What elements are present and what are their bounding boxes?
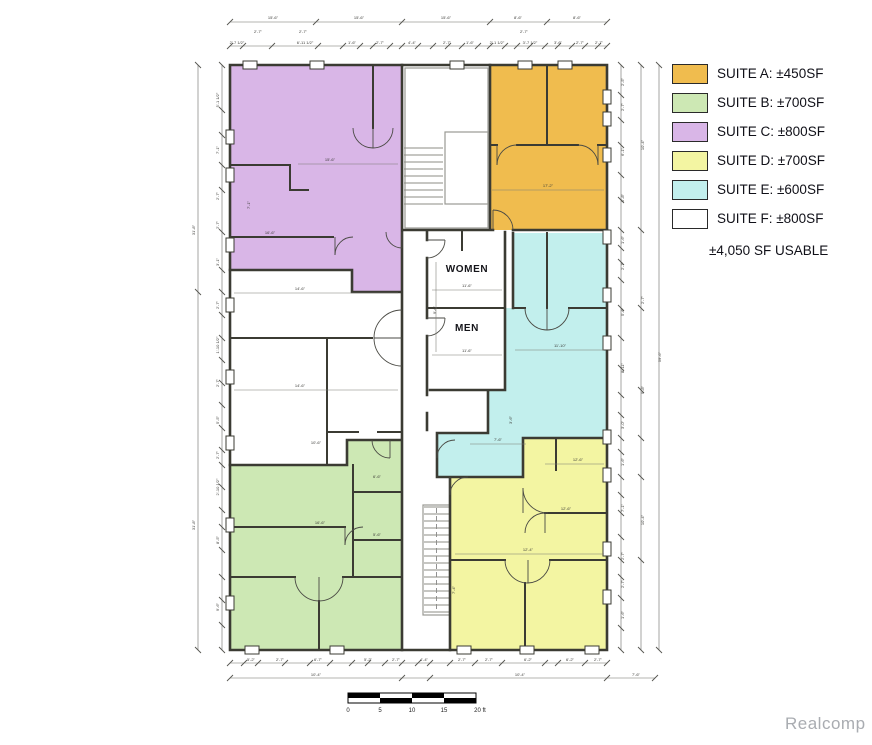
legend-item-suite-b: SUITE B: ±700SF xyxy=(672,92,825,113)
suite-f-swatch xyxy=(672,209,708,229)
dimension-label: 2'-5" xyxy=(620,77,625,86)
dimension-label: 2'-7" xyxy=(299,29,308,34)
suite-b-region xyxy=(230,440,402,650)
dimension-label: 8'-5" xyxy=(215,535,220,544)
dimension-label: 2'-7" xyxy=(215,191,220,200)
dimension-label: 10'-4" xyxy=(640,139,645,150)
legend: SUITE A: ±450SF SUITE B: ±700SF SUITE C:… xyxy=(672,63,825,237)
dimension-label: 15'-6" xyxy=(441,15,452,20)
dimension-label: 8'-11" xyxy=(620,362,625,372)
suite-d-label: SUITE D: ±700SF xyxy=(717,153,825,168)
suite-b-label: SUITE B: ±700SF xyxy=(717,95,824,110)
dimension-label: 2'-7" xyxy=(392,657,401,662)
suite-e-label: SUITE E: ±600SF xyxy=(717,182,824,197)
suite-e-swatch xyxy=(672,180,708,200)
dimension-label: 1'-6" xyxy=(620,457,625,466)
dimension-label: 3'-0" xyxy=(620,420,625,429)
dimension-label: 12'-6" xyxy=(561,506,572,511)
dimension-label: 16'-6" xyxy=(265,230,276,235)
dimension-label: 3'-1" xyxy=(215,257,220,266)
dimension-label: 12'-6" xyxy=(573,457,584,462)
dimension-label: 11'-6" xyxy=(462,348,472,353)
suite-f-label: SUITE F: ±800SF xyxy=(717,211,823,226)
dimension-label: 5'-8" xyxy=(620,193,625,202)
dimension-label: 6'-2" xyxy=(566,657,575,662)
dimension-label: 11'-6" xyxy=(462,283,472,288)
dimension-label: 2'-7" xyxy=(520,29,529,34)
dimension-label: 2'-7" xyxy=(594,657,603,662)
dimension-label: 2'-7" xyxy=(485,657,494,662)
suite-c-region xyxy=(230,65,402,292)
dimension-label: 10'-4" xyxy=(311,672,322,677)
dimension-label: 5'-6" xyxy=(620,307,625,316)
dimension-label: 14'-6" xyxy=(295,286,306,291)
dimension-label: 2'-7" xyxy=(443,40,452,45)
dimension-label: 2'-7" xyxy=(276,657,285,662)
dimension-label: 2'-7" xyxy=(576,40,585,45)
dimension-label: 2'-7" xyxy=(215,450,220,459)
dimension-label: 7'-1" xyxy=(215,145,220,154)
dimension-label: 1'-10 1/2" xyxy=(215,336,220,353)
dimension-label: 9'-8" xyxy=(640,385,645,394)
dimension-label: 7'-1" xyxy=(620,503,625,512)
dimension-label: 15'-6" xyxy=(325,157,336,162)
legend-item-suite-d: SUITE D: ±700SF xyxy=(672,150,825,171)
dimension-label: 17'-2" xyxy=(543,183,554,188)
dimension-label: 5'-1 1/2" xyxy=(215,92,220,107)
dimension-label: 2'-7" xyxy=(620,102,625,111)
dimension-label: 9'-6" xyxy=(215,602,220,611)
dimension-label: 5'-2" xyxy=(364,657,373,662)
dimension-label: 2'-7" xyxy=(215,300,220,309)
dimension-label: 3'-7 1/2" xyxy=(523,40,538,45)
legend-item-suite-c: SUITE C: ±800SF xyxy=(672,121,825,142)
dimension-label: 2'-7" xyxy=(215,378,220,387)
dimension-label: 5'-6" xyxy=(373,532,382,537)
dimension-label: 31'-8" xyxy=(191,519,196,530)
dimension-label: 7'-6" xyxy=(632,672,641,677)
dimension-label: 10'-4" xyxy=(515,672,526,677)
suite-c-label: SUITE C: ±800SF xyxy=(717,124,825,139)
dimension-label: 6'-11 1/2" xyxy=(297,40,314,45)
suite-regions xyxy=(230,65,607,650)
dimension-label: 7'-6" xyxy=(494,437,503,442)
dimension-label: 5'-5" xyxy=(215,415,220,424)
dimension-label: 2'-1 1/2" xyxy=(490,40,505,45)
dimension-label: 31'-8" xyxy=(191,224,196,235)
scale-bar: 0 5 10 15 20 ft xyxy=(346,693,486,714)
dimension-label: 14'-6" xyxy=(295,383,306,388)
women-room-label: WOMEN xyxy=(446,264,488,275)
suite-c-swatch xyxy=(672,122,708,142)
legend-item-suite-a: SUITE A: ±450SF xyxy=(672,63,825,84)
dimension-label: 6'-2" xyxy=(524,657,533,662)
dimension-label: 6'-7" xyxy=(314,657,323,662)
scale-tick-15: 15 xyxy=(441,708,448,714)
scale-tick-10: 10 xyxy=(409,708,416,714)
dimension-label: 15'-6" xyxy=(268,15,279,20)
realcomp-watermark: Realcomp xyxy=(785,714,866,734)
floor-plan-page: 15'-6"15'-6"15'-6"8'-6"8'-6"2'-7"2'-7"2'… xyxy=(0,0,872,745)
dimension-label: 4'-4" xyxy=(420,657,429,662)
dimension-label: 1'-6" xyxy=(620,610,625,619)
dimension-label: 1'-6" xyxy=(348,40,357,45)
dimension-label: 7'-4" xyxy=(451,585,456,594)
suite-a-label: SUITE A: ±450SF xyxy=(717,66,823,81)
dimension-label: 3'-6" xyxy=(508,415,513,424)
dimension-label: 2'-7" xyxy=(458,657,467,662)
dimension-label: 10'-6" xyxy=(311,440,322,445)
dimension-label: 3'-6" xyxy=(554,40,563,45)
dimension-label: 8'-6" xyxy=(514,15,523,20)
dimension-label: 8'-6" xyxy=(573,15,582,20)
dimension-label: 16'-6" xyxy=(315,520,326,525)
dimension-label: 2'-7" xyxy=(376,40,385,45)
scale-tick-20ft: 20 ft xyxy=(474,708,486,714)
suite-d-swatch xyxy=(672,151,708,171)
scale-tick-5: 5 xyxy=(378,708,382,714)
dimension-label: 2'-7" xyxy=(595,40,604,45)
dimension-label: 11'-10" xyxy=(554,343,567,348)
dimension-label: 59'-6" xyxy=(657,351,662,362)
legend-item-suite-e: SUITE E: ±600SF xyxy=(672,179,825,200)
dimension-label: 2'-7" xyxy=(215,220,220,229)
dimension-label: 15'-6" xyxy=(354,15,365,20)
dimension-label: 2'-7" xyxy=(640,295,645,304)
scale-tick-0: 0 xyxy=(346,708,350,714)
usable-total-label: ±4,050 SF USABLE xyxy=(709,243,828,258)
dimension-label: 2'-7" xyxy=(620,551,625,560)
dimension-label: 2'-10 1/2" xyxy=(215,478,220,495)
legend-item-suite-f: SUITE F: ±800SF xyxy=(672,208,825,229)
dimension-label: 6'-6" xyxy=(373,474,382,479)
dimension-label: 10'-4" xyxy=(640,514,645,525)
dimension-label: 4'-4" xyxy=(408,40,417,45)
dimension-label: 2'-7 1/2" xyxy=(230,40,245,45)
dimension-label: 2'-7" xyxy=(620,579,625,588)
suite-b-swatch xyxy=(672,93,708,113)
dimension-label: 1'-6" xyxy=(620,235,625,244)
dimension-label: 2'-7" xyxy=(620,261,625,270)
suite-a-swatch xyxy=(672,64,708,84)
dimension-label: 7'-1" xyxy=(246,200,251,209)
dimension-label: 12'-4" xyxy=(523,547,534,552)
dimension-label: 2'-7" xyxy=(254,29,263,34)
dimension-label: 1'-6" xyxy=(466,40,475,45)
dimension-label: 6'-1" xyxy=(620,147,625,156)
men-room-label: MEN xyxy=(455,323,479,334)
dimension-label: 5'-2" xyxy=(247,657,256,662)
dimension-label: 9'-6" xyxy=(432,305,437,314)
